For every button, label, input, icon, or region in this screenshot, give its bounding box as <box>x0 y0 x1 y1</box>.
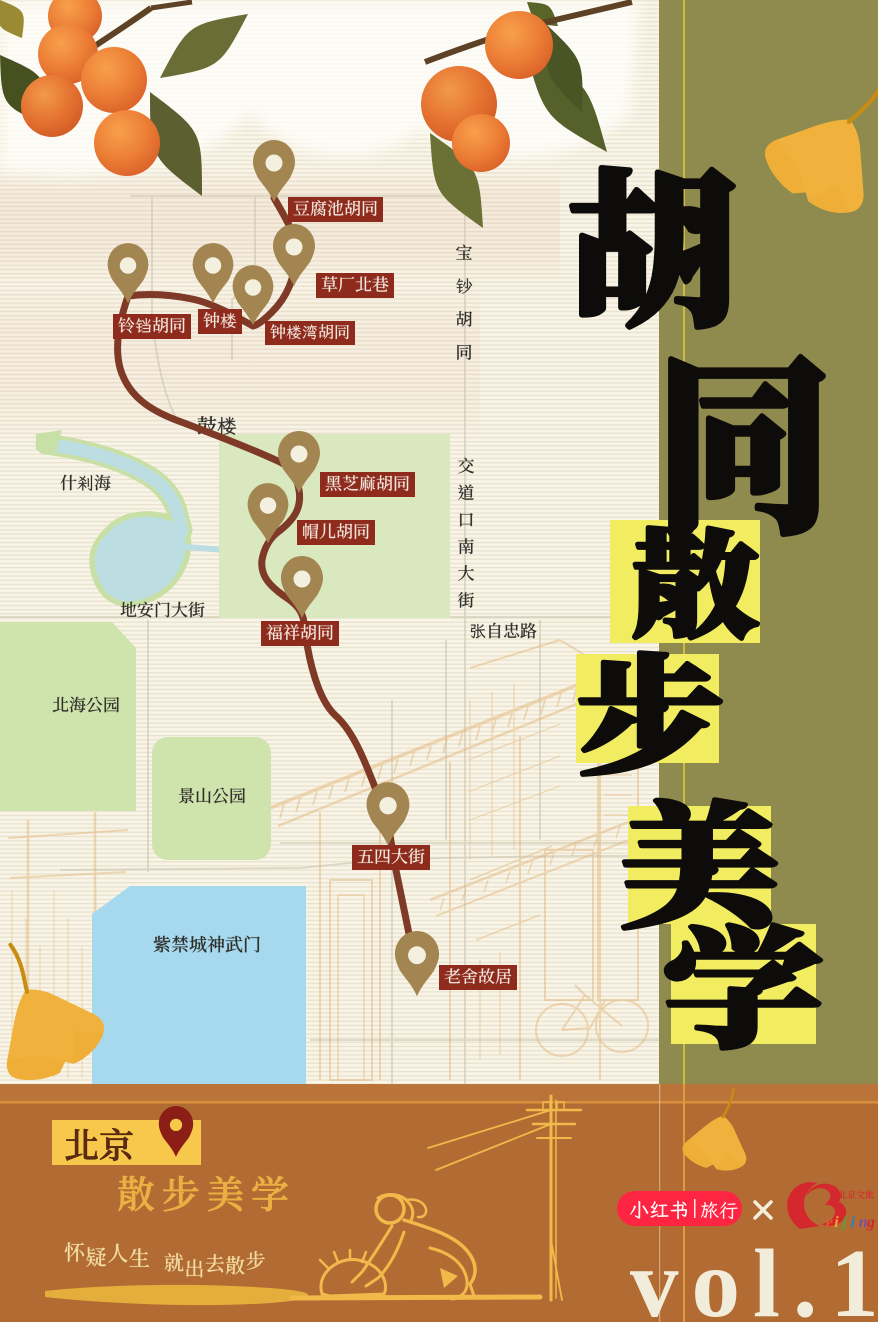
svg-text:vol.1: vol.1 <box>630 1230 878 1322</box>
svg-text:i: i <box>834 1214 839 1231</box>
svg-text:e: e <box>826 1214 833 1231</box>
svg-text:i: i <box>851 1214 856 1231</box>
svg-text:g: g <box>866 1214 875 1231</box>
